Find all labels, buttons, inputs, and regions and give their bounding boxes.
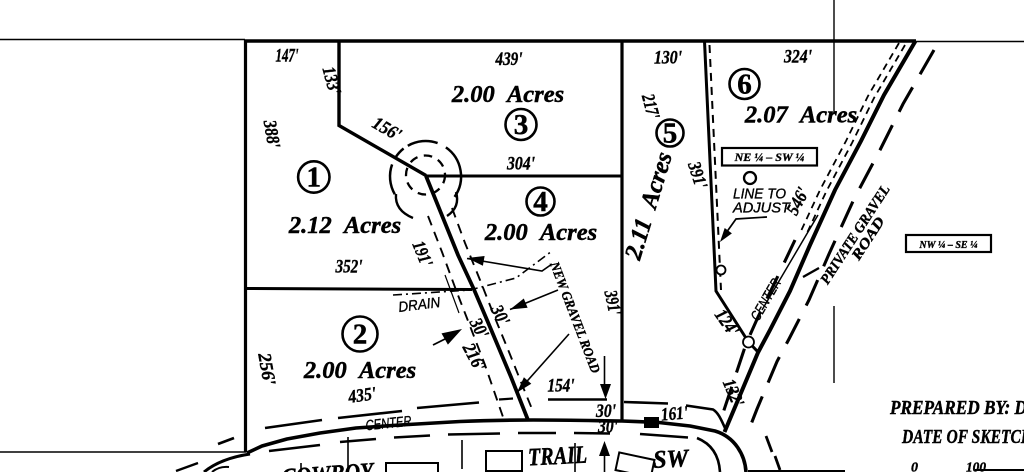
svg-text:5: 5 [663, 118, 678, 150]
svg-text:304': 304' [506, 155, 535, 175]
svg-text:130': 130' [654, 49, 682, 69]
svg-text:352': 352' [335, 258, 363, 278]
svg-text:TRAIL: TRAIL [527, 441, 587, 471]
svg-text:2.07 Acres: 2.07 Acres [744, 102, 857, 129]
svg-text:154': 154' [548, 377, 575, 397]
svg-text:439': 439' [495, 50, 523, 70]
svg-text:DATE OF SKETCH: DATE OF SKETCH [901, 426, 1024, 448]
svg-text:SW: SW [652, 445, 690, 472]
svg-text:6: 6 [737, 69, 752, 101]
svg-text:2.12 Acres: 2.12 Acres [288, 212, 401, 239]
svg-text:1: 1 [307, 162, 322, 194]
svg-text:2.00 Acres: 2.00 Acres [484, 219, 597, 246]
svg-text:2: 2 [353, 319, 368, 351]
svg-text:161': 161' [660, 403, 689, 425]
svg-text:4: 4 [533, 186, 548, 218]
svg-text:435': 435' [346, 384, 377, 408]
svg-text:100: 100 [966, 461, 986, 472]
svg-text:147': 147' [276, 47, 299, 67]
svg-text:ADJUST: ADJUST [732, 201, 791, 217]
svg-text:324': 324' [783, 48, 812, 68]
svg-text:2.00 Acres: 2.00 Acres [303, 357, 416, 384]
svg-text:PREPARED BY: D: PREPARED BY: D [889, 397, 1024, 419]
svg-text:3: 3 [514, 109, 529, 141]
svg-text:NW ¼ – SE ¼: NW ¼ – SE ¼ [918, 240, 978, 251]
svg-text:0: 0 [911, 461, 918, 472]
svg-text:30': 30' [597, 418, 618, 438]
svg-text:NE ¼ – SW ¼: NE ¼ – SW ¼ [734, 150, 805, 164]
svg-text:2.00 Acres: 2.00 Acres [451, 81, 564, 108]
